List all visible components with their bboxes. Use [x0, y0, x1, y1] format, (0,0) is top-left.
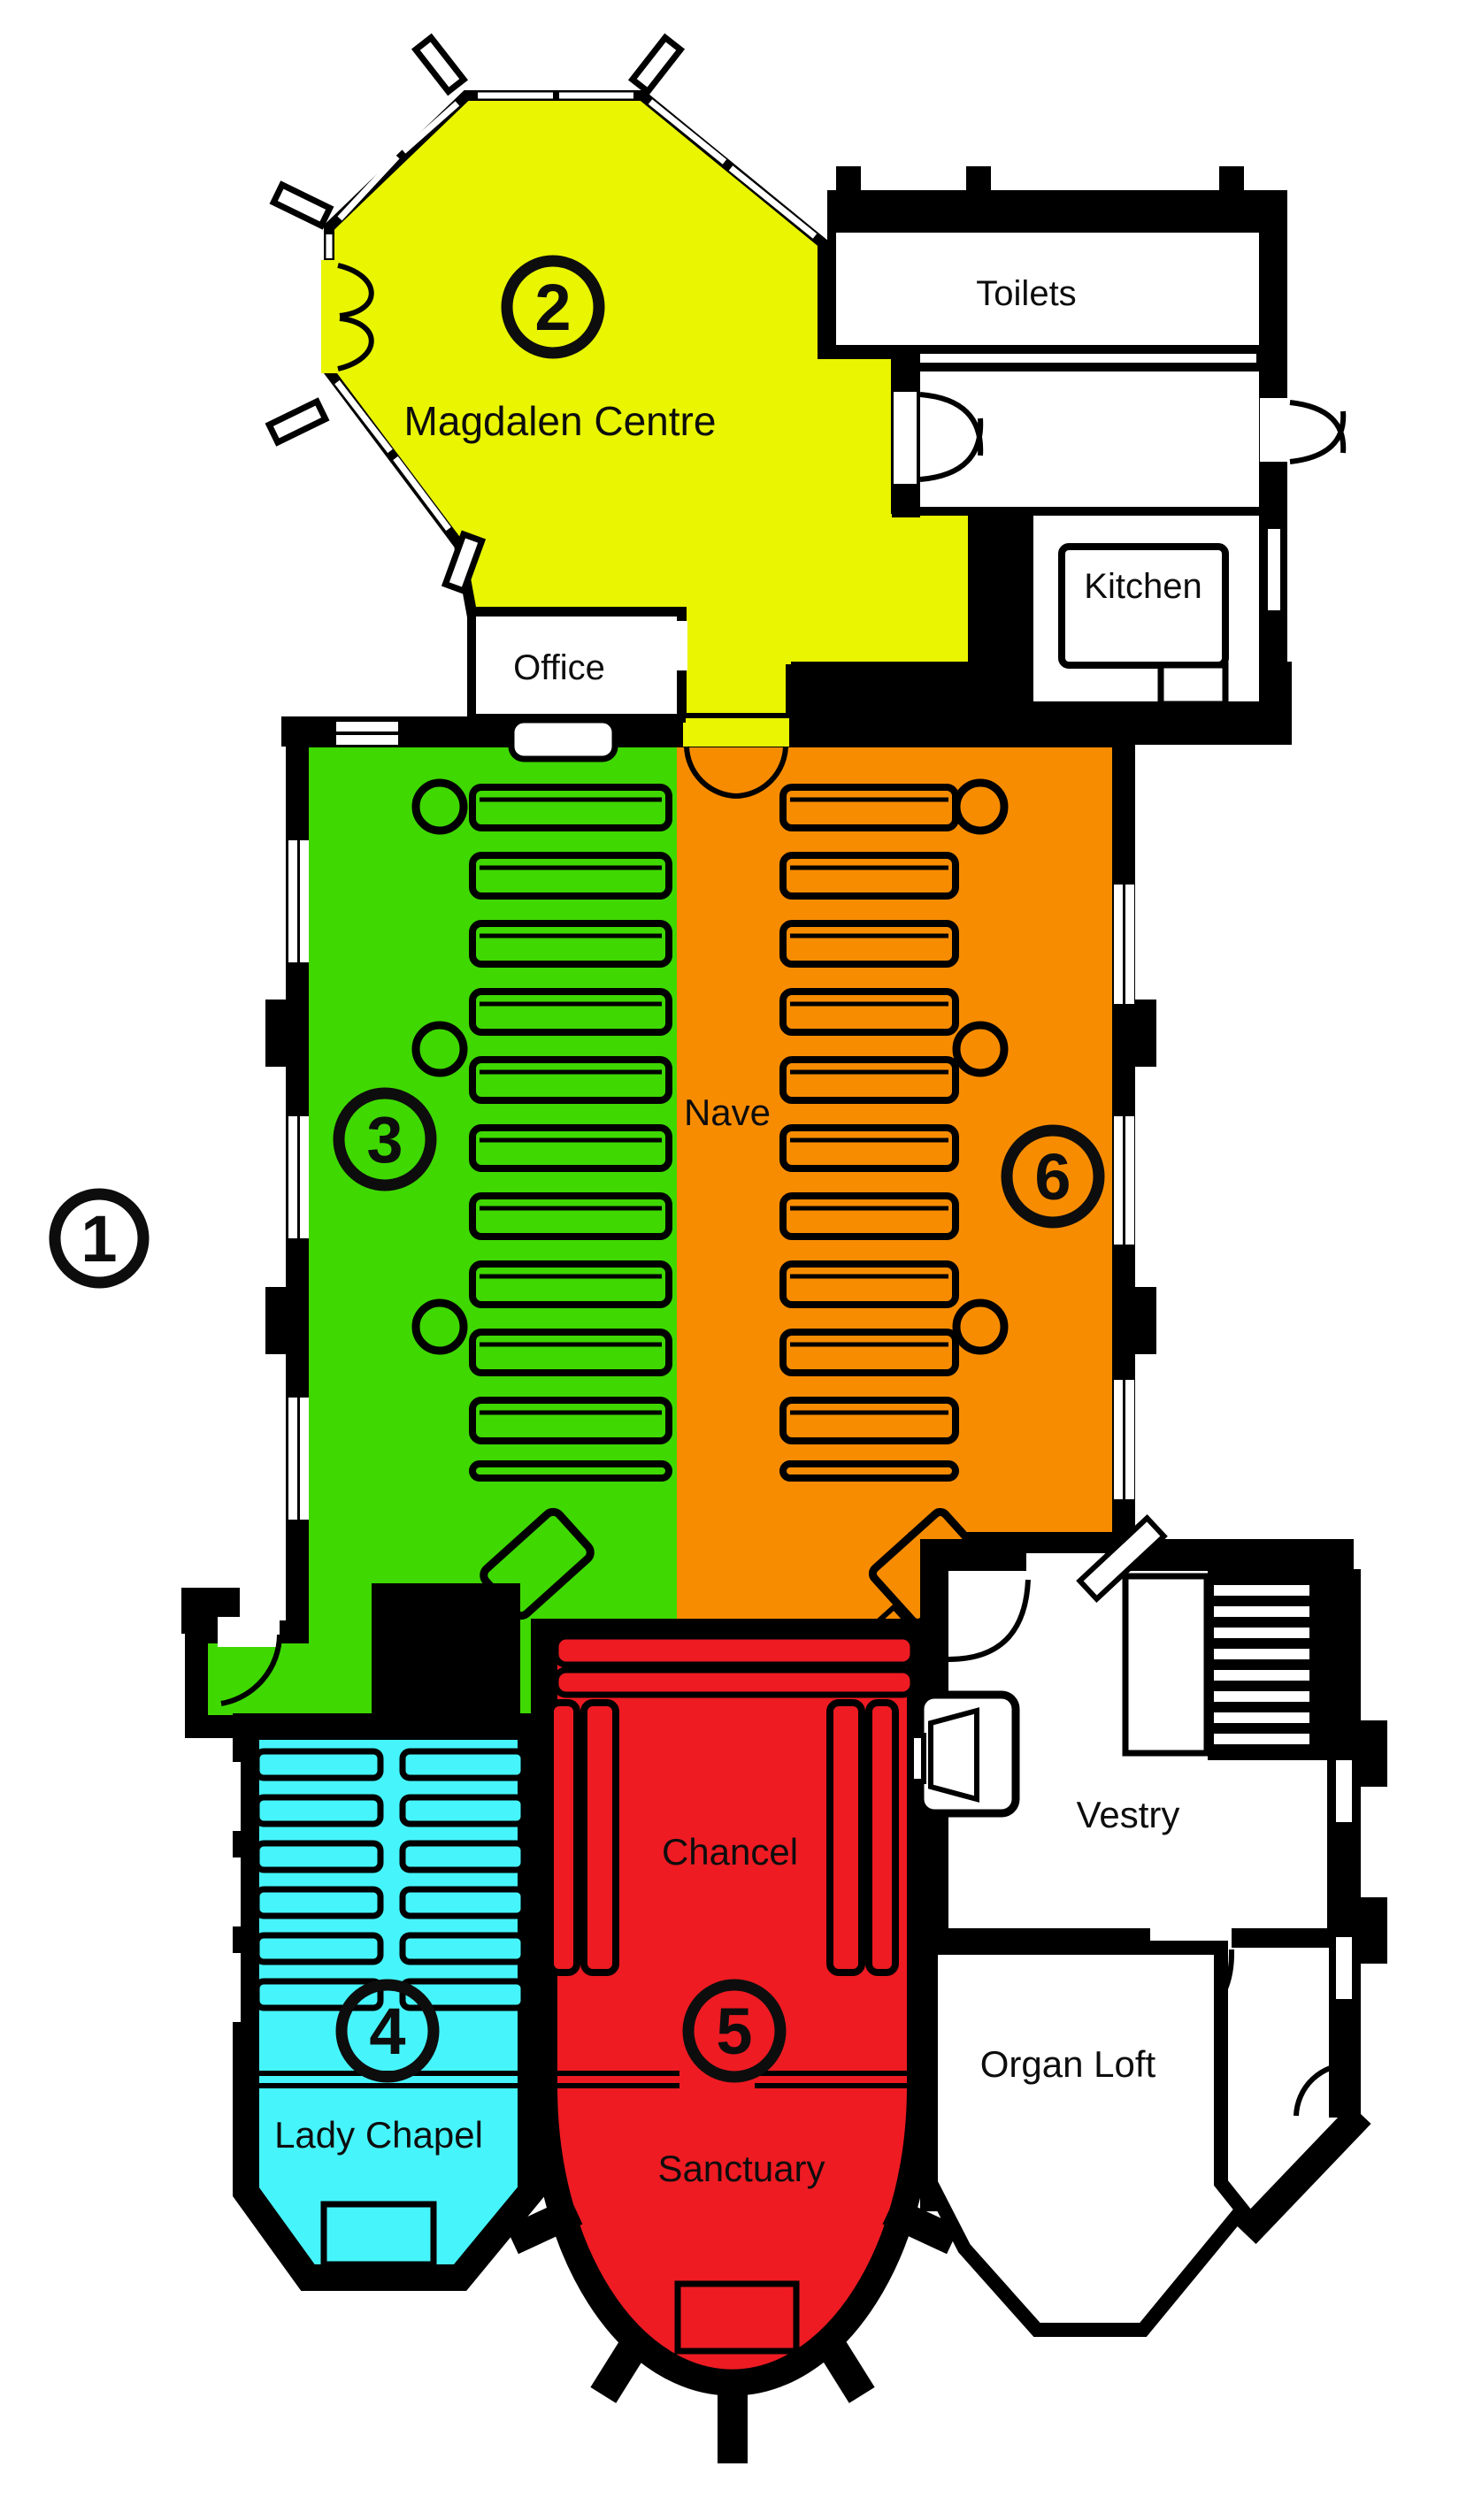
exterior-door-arcs [1290, 402, 1343, 462]
zone-4-number: 4 [369, 1995, 405, 2068]
organ-loft-room [931, 1948, 1242, 2330]
block-buttresses [836, 166, 1244, 193]
zone-outside-marker: 1 [55, 1194, 143, 1283]
organ-console-keyboard [931, 1711, 977, 1799]
zone-chancel-sanctuary: Chancel Sanctuary 5 [506, 1632, 960, 2463]
high-altar [678, 2284, 796, 2351]
office-nave-door [511, 720, 615, 759]
lobby-west-door-gap [894, 392, 917, 484]
zone-2-number: 2 [534, 271, 571, 344]
organ-loft-label: Organ Loft [980, 2043, 1156, 2085]
top-wall-window-a [336, 722, 398, 731]
lady-chapel-label: Lady Chapel [274, 2114, 483, 2156]
chancel-label: Chancel [662, 1831, 798, 1873]
block-top-wall [827, 190, 1287, 228]
magdalen-centre-label: Magdalen Centre [404, 398, 717, 444]
top-wall-window-b [336, 735, 398, 745]
kitchen-sub-box [1161, 665, 1225, 704]
zone-6-number: 6 [1034, 1140, 1071, 1214]
zone-lady-chapel: 4 Lady Chapel [226, 1727, 531, 2278]
chapel-windows [226, 1762, 241, 2022]
vestry-label: Vestry [1077, 1794, 1180, 1835]
se-corner-wall [1246, 2114, 1361, 2234]
lobby-room [916, 367, 1263, 511]
main-entrance-gap [683, 718, 789, 747]
stairs-block [1208, 1569, 1332, 1760]
lobby-east-door-gap [1260, 398, 1290, 462]
chancel-steps [556, 1636, 913, 1695]
east-wall-buttresses [1361, 1720, 1387, 1964]
block-east-wall [1329, 1569, 1361, 2118]
baptistry-wall-block [372, 1583, 520, 1727]
floor-plan-canvas: 2 Magdalen Centre [0, 0, 1474, 2520]
chapel-altar [324, 2204, 434, 2264]
vestry-organ-block: Vestry Organ Loft [911, 1518, 1387, 2330]
toilets-label: Toilets [976, 274, 1076, 313]
office-east-door [675, 621, 687, 670]
office: Office [472, 612, 687, 718]
octagon-west-door-gap [321, 260, 337, 373]
zone-3-number: 3 [366, 1103, 403, 1176]
kitchen-label-box [1062, 547, 1225, 665]
church-floor-plan-page: 2 Magdalen Centre [0, 0, 1474, 2520]
porch-door-gap [218, 1617, 280, 1647]
nave-south-pews [783, 787, 956, 1478]
kitchen-label: Kitchen [1084, 567, 1201, 606]
office-label: Office [513, 648, 605, 687]
zone-1-number: 1 [81, 1202, 117, 1275]
stair-landing [1125, 1576, 1207, 1753]
nave-label: Nave [684, 1091, 771, 1133]
zone-5-number: 5 [716, 1995, 752, 2068]
organ-console-bench [911, 1735, 924, 1781]
kitchen-east-window [1268, 529, 1280, 610]
sanctuary-label: Sanctuary [657, 2148, 825, 2189]
nave-north-pews [472, 787, 669, 1478]
